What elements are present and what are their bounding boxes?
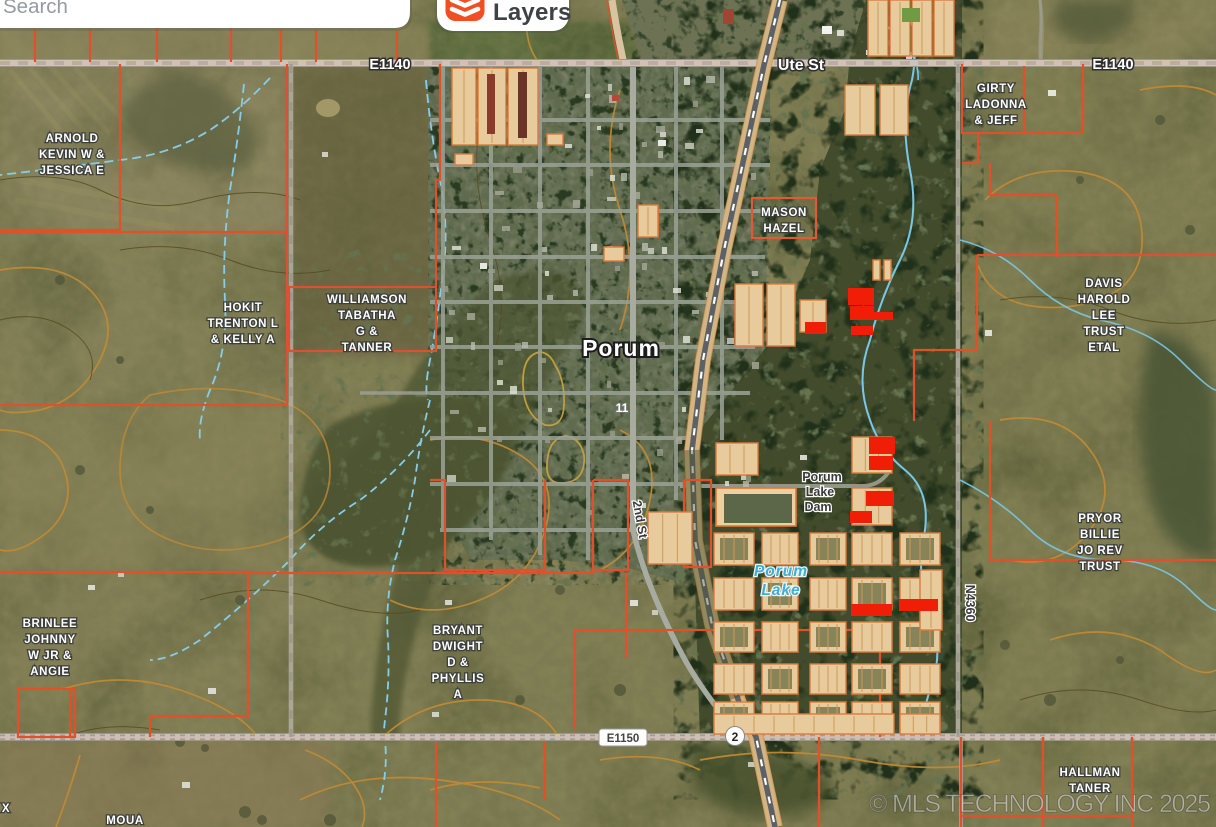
svg-text:MOUA: MOUA	[106, 815, 144, 827]
svg-text:Dam: Dam	[804, 500, 831, 514]
svg-text:Porum: Porum	[582, 335, 660, 361]
svg-text:LADONNA: LADONNA	[965, 99, 1027, 111]
svg-text:2: 2	[732, 730, 739, 744]
svg-text:E1140: E1140	[1092, 57, 1133, 73]
svg-text:KEVIN W &: KEVIN W &	[39, 149, 105, 161]
svg-text:JOHNNY: JOHNNY	[24, 634, 76, 646]
svg-text:Lake: Lake	[761, 582, 800, 599]
svg-text:E1150: E1150	[607, 733, 640, 745]
svg-text:DAVIS: DAVIS	[1085, 278, 1122, 290]
svg-text:TRENTON L: TRENTON L	[208, 318, 279, 330]
svg-text:Lake: Lake	[806, 485, 835, 499]
svg-text:Ute St: Ute St	[778, 57, 825, 74]
svg-text:TANNER: TANNER	[342, 342, 393, 354]
svg-text:TRUST: TRUST	[1083, 326, 1124, 338]
svg-text:ARNOLD: ARNOLD	[46, 133, 99, 145]
svg-text:TRUST: TRUST	[1079, 561, 1120, 573]
svg-text:D &: D &	[447, 657, 469, 669]
svg-text:LEE: LEE	[1092, 310, 1116, 322]
svg-text:MASON: MASON	[761, 207, 807, 219]
svg-text:A: A	[454, 689, 463, 701]
svg-text:HAROLD: HAROLD	[1078, 294, 1131, 306]
svg-text:© MLS TECHNOLOGY INC 2025: © MLS TECHNOLOGY INC 2025	[869, 790, 1211, 818]
svg-text:JO REV: JO REV	[1077, 545, 1123, 557]
svg-text:BRYANT: BRYANT	[433, 625, 483, 637]
svg-text:G &: G &	[356, 326, 378, 338]
svg-text:N4360: N4360	[963, 585, 977, 622]
svg-text:Porum: Porum	[754, 563, 808, 580]
svg-text:W JR &: W JR &	[28, 650, 72, 662]
svg-text:WILLIAMSON: WILLIAMSON	[327, 294, 407, 306]
svg-text:ANGIE: ANGIE	[30, 666, 69, 678]
svg-text:PHYLLIS: PHYLLIS	[432, 673, 485, 685]
svg-text:PRYOR: PRYOR	[1078, 513, 1122, 525]
svg-text:HOKIT: HOKIT	[224, 302, 263, 314]
svg-text:GIRTY: GIRTY	[977, 83, 1015, 95]
svg-text:Porum: Porum	[802, 470, 842, 484]
svg-text:HALLMAN: HALLMAN	[1059, 767, 1120, 779]
svg-text:& JEFF: & JEFF	[974, 115, 1017, 127]
svg-text:TABATHA: TABATHA	[338, 310, 396, 322]
svg-text:BRINLEE: BRINLEE	[23, 618, 78, 630]
svg-text:DWIGHT: DWIGHT	[433, 641, 483, 653]
svg-text:& KELLY A: & KELLY A	[211, 334, 275, 346]
svg-text:E1140: E1140	[369, 57, 410, 73]
svg-text:Layers: Layers	[493, 0, 572, 26]
svg-text:11: 11	[616, 401, 629, 415]
svg-text:JESSICA E: JESSICA E	[39, 165, 104, 177]
svg-text:X: X	[2, 803, 10, 815]
svg-text:BILLIE: BILLIE	[1080, 529, 1120, 541]
svg-text:ETAL: ETAL	[1088, 342, 1120, 354]
svg-text:HAZEL: HAZEL	[763, 223, 804, 235]
svg-text:Search: Search	[3, 0, 68, 18]
